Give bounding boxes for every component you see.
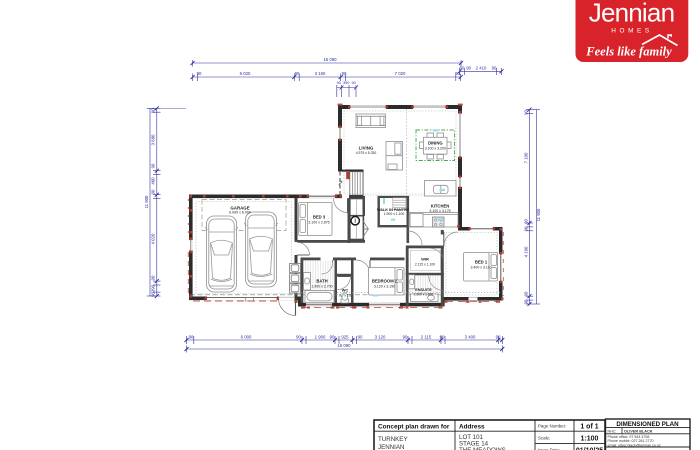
svg-text:Jennian: Jennian: [589, 0, 674, 28]
svg-text:7 020: 7 020: [395, 71, 406, 76]
svg-text:90: 90: [151, 275, 156, 280]
svg-text:Feels like family: Feels like family: [585, 45, 672, 59]
svg-text:DINING: DINING: [428, 141, 443, 146]
svg-text:ENSUITE: ENSUITE: [415, 288, 432, 292]
svg-text:1.900 x 2.700: 1.900 x 2.700: [311, 285, 332, 289]
svg-text:90: 90: [151, 292, 156, 297]
svg-text:390: 390: [151, 284, 156, 292]
svg-text:90: 90: [151, 163, 156, 168]
svg-text:1.900 x 1.600: 1.900 x 1.600: [414, 293, 434, 297]
svg-text:90: 90: [151, 189, 156, 194]
svg-text:OLIVER BLACK: OLIVER BLACK: [624, 430, 653, 434]
svg-text:1 900: 1 900: [315, 334, 326, 339]
svg-text:90: 90: [403, 334, 408, 339]
svg-text:16 090: 16 090: [337, 343, 351, 348]
svg-text:1.900 x 1.100: 1.900 x 1.100: [384, 212, 405, 216]
svg-text:0.9 x 1.6: 0.9 x 1.6: [339, 294, 351, 298]
svg-text:6 020: 6 020: [240, 71, 251, 76]
svg-text:3 120: 3 120: [375, 334, 386, 339]
svg-text:WC: WC: [342, 288, 349, 293]
svg-text:90: 90: [492, 66, 497, 71]
svg-text:Address: Address: [459, 424, 485, 431]
svg-text:3 160: 3 160: [315, 71, 326, 76]
svg-text:4 160: 4 160: [523, 246, 528, 257]
svg-text:90: 90: [523, 291, 528, 296]
svg-text:2.115 x 1.100: 2.115 x 1.100: [415, 263, 435, 267]
svg-text:90: 90: [523, 219, 528, 224]
svg-text:90: 90: [523, 110, 528, 115]
svg-text:90: 90: [151, 108, 156, 113]
svg-text:90: 90: [496, 334, 501, 339]
svg-text:HOMES: HOMES: [611, 28, 652, 35]
svg-text:90: 90: [337, 81, 341, 85]
svg-text:KITCHEN: KITCHEN: [431, 204, 450, 209]
svg-text:6 000: 6 000: [241, 334, 252, 339]
svg-text:11 906: 11 906: [536, 208, 541, 221]
svg-text:BED 1: BED 1: [475, 260, 488, 265]
svg-text:3.400 x 3.110: 3.400 x 3.110: [471, 266, 492, 270]
svg-text:Page Number:: Page Number:: [538, 424, 566, 429]
svg-text:90: 90: [523, 299, 528, 304]
svg-text:3 400: 3 400: [465, 334, 476, 339]
svg-text:WIR: WIR: [421, 257, 429, 262]
svg-text:LIVING: LIVING: [359, 146, 374, 151]
svg-text:90: 90: [523, 226, 528, 231]
svg-text:460: 460: [151, 177, 156, 185]
svg-text:JENNIAN: JENNIAN: [378, 444, 404, 450]
svg-text:BEDROOM 2: BEDROOM 2: [372, 279, 398, 284]
svg-text:NHC:: NHC:: [608, 430, 617, 434]
svg-text:1 of 1: 1 of 1: [580, 424, 598, 431]
svg-text:16 090: 16 090: [323, 57, 337, 62]
svg-text:90: 90: [295, 71, 300, 76]
svg-text:4 020: 4 020: [151, 233, 156, 244]
svg-text:BATH: BATH: [316, 279, 327, 284]
svg-text:90: 90: [342, 71, 347, 76]
svg-text:Phone office: 07 544 4708: Phone office: 07 544 4708: [608, 435, 650, 439]
svg-text:GARAGE: GARAGE: [230, 205, 249, 210]
svg-text:Scale:: Scale:: [538, 436, 550, 441]
svg-text:2 115: 2 115: [421, 334, 432, 339]
svg-text:3.120 x 3.190: 3.120 x 3.190: [374, 285, 395, 289]
svg-text:7 100: 7 100: [523, 152, 528, 163]
svg-text:11 900: 11 900: [144, 195, 149, 208]
svg-text:90: 90: [296, 334, 301, 339]
svg-text:2 410: 2 410: [476, 66, 487, 71]
svg-text:3.100 x 3.175: 3.100 x 3.175: [429, 209, 450, 213]
svg-text:90: 90: [440, 334, 445, 339]
svg-text:BED 3: BED 3: [313, 215, 326, 220]
svg-text:TURNKEY: TURNKEY: [378, 436, 408, 443]
svg-text:3.100 x 2.875: 3.100 x 2.875: [308, 221, 329, 225]
svg-text:DIMENSIONED PLAN: DIMENSIONED PLAN: [616, 421, 679, 428]
svg-text:90: 90: [460, 66, 465, 71]
svg-text:email: oliver.black@jennian.co: email: oliver.black@jennian.co.nz: [608, 443, 661, 447]
svg-text:90: 90: [358, 334, 363, 339]
svg-text:4.975 x 5.330: 4.975 x 5.330: [356, 151, 377, 155]
svg-text:6.000 x 6.000: 6.000 x 6.000: [229, 211, 251, 215]
svg-text:925: 925: [341, 334, 349, 339]
svg-text:1:100: 1:100: [581, 436, 599, 443]
svg-text:90: 90: [351, 81, 355, 85]
svg-text:90: 90: [330, 334, 335, 339]
svg-text:90: 90: [189, 334, 194, 339]
svg-text:Concept plan drawn for: Concept plan drawn for: [378, 424, 450, 431]
svg-text:3.100 x 3.200: 3.100 x 3.200: [425, 147, 446, 151]
svg-text:90: 90: [197, 71, 202, 76]
svg-text:390: 390: [343, 81, 349, 85]
svg-text:90: 90: [466, 66, 471, 71]
svg-text:3 680: 3 680: [151, 134, 156, 145]
